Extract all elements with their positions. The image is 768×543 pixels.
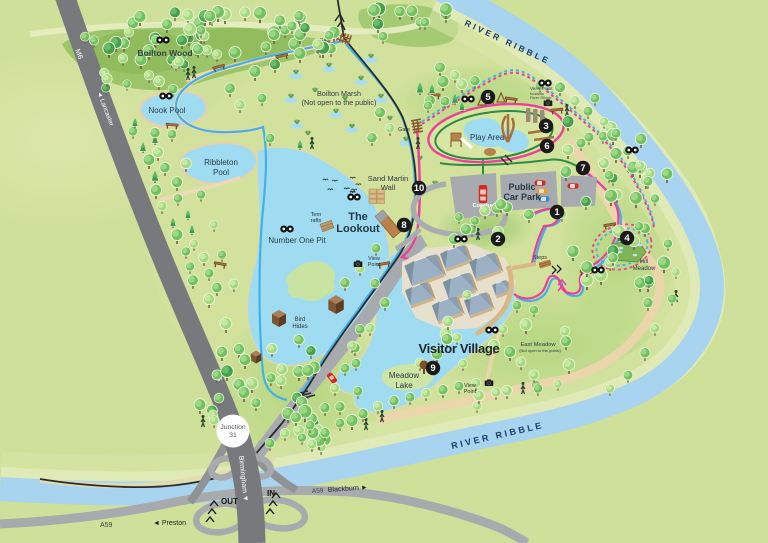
svg-text:Number One Pit: Number One Pit	[268, 236, 326, 245]
svg-text:River Ribble: River Ribble	[530, 95, 553, 100]
svg-text:Car Park: Car Park	[503, 192, 541, 202]
svg-text:Hides: Hides	[292, 324, 307, 330]
svg-text:rafts: rafts	[311, 218, 322, 224]
svg-text:Visitor Village: Visitor Village	[418, 341, 499, 356]
svg-text:A59: A59	[100, 522, 113, 529]
svg-text:Meadow: Meadow	[389, 371, 419, 380]
svg-text:5: 5	[485, 92, 491, 103]
svg-text:Lookout: Lookout	[336, 223, 380, 235]
svg-text:A59: A59	[312, 487, 324, 495]
svg-text:Wall: Wall	[381, 183, 396, 192]
svg-text:(Not open to the public): (Not open to the public)	[519, 348, 561, 353]
svg-text:Pool: Pool	[213, 168, 229, 177]
svg-text:Sand Martin: Sand Martin	[368, 174, 408, 183]
svg-text:Point: Point	[464, 389, 477, 395]
svg-text:Nook Pool: Nook Pool	[149, 106, 186, 115]
svg-text:2: 2	[495, 234, 500, 245]
svg-text:6: 6	[544, 141, 549, 152]
svg-text:◄ Preston: ◄ Preston	[153, 520, 186, 527]
svg-text:Boilton Wood: Boilton Wood	[137, 48, 192, 58]
svg-text:The: The	[348, 211, 368, 223]
svg-text:Lake: Lake	[395, 381, 413, 390]
svg-text:Hill: Hill	[640, 259, 648, 265]
svg-text:Boilton Marsh: Boilton Marsh	[317, 89, 361, 98]
svg-text:Play Area: Play Area	[470, 133, 505, 142]
svg-text:OUT: OUT	[221, 497, 238, 506]
svg-text:(Not open to the public): (Not open to the public)	[302, 98, 377, 107]
svg-text:7: 7	[580, 163, 585, 174]
svg-text:31: 31	[229, 432, 237, 439]
svg-text:Point: Point	[368, 262, 381, 268]
svg-text:Steps: Steps	[533, 255, 547, 261]
svg-text:IN: IN	[267, 489, 275, 498]
svg-text:Meadow: Meadow	[633, 266, 656, 272]
svg-text:Gate: Gate	[398, 127, 410, 133]
svg-text:9: 9	[430, 363, 435, 374]
svg-text:Ribbleton: Ribbleton	[204, 158, 238, 167]
svg-text:8: 8	[401, 220, 406, 231]
svg-text:10: 10	[414, 183, 425, 194]
svg-text:Bird: Bird	[295, 317, 306, 323]
svg-text:1: 1	[554, 207, 560, 218]
svg-text:Junction: Junction	[220, 424, 246, 431]
svg-text:3: 3	[543, 121, 548, 132]
svg-text:4: 4	[624, 233, 630, 244]
svg-text:Public: Public	[508, 182, 535, 192]
